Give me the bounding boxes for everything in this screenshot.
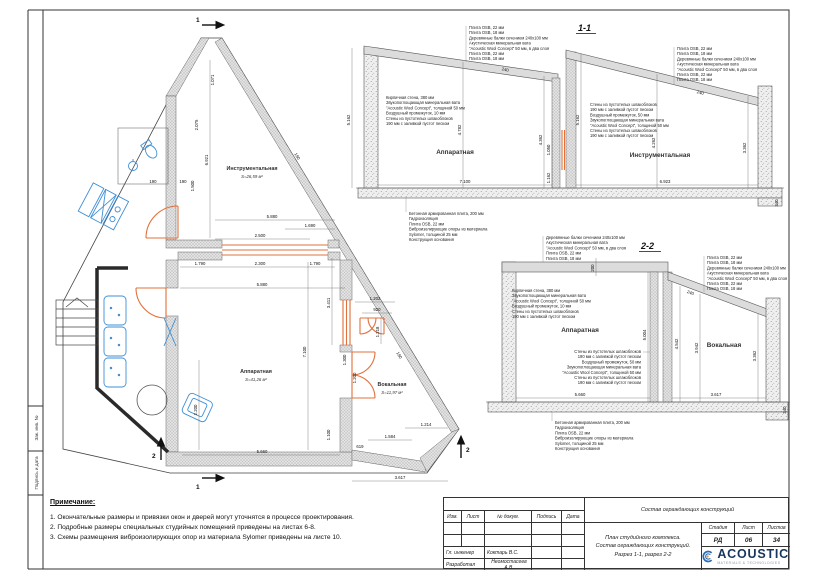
dimension-label: 5.880 <box>267 214 278 219</box>
svg-text:Конструкция основания: Конструкция основания <box>409 237 454 242</box>
roof-slab <box>502 262 668 272</box>
section-room-label: Инструментальная <box>630 152 691 159</box>
stage-header: Стадия <box>701 522 734 533</box>
stairs-icon <box>56 298 98 345</box>
col-header: Дата <box>561 510 584 522</box>
logo-name: ACOUSTIC <box>717 548 789 561</box>
dimension-label: 190 <box>395 351 403 360</box>
round-table-icon <box>137 385 167 415</box>
dimension-label: 3.617 <box>711 392 722 397</box>
signature-role: Разработал <box>444 558 484 570</box>
dimension-label: 2.200 <box>193 404 198 415</box>
outer-wall <box>364 48 378 188</box>
section-title: 1-1 <box>578 23 591 33</box>
dimension-label: 1.202 <box>370 296 381 301</box>
section-marker-label: 1 <box>196 484 200 491</box>
room-name: Инструментальная <box>227 166 278 172</box>
notes-title: Примечание: <box>50 499 430 506</box>
roof-annotation: Плита OSB, 22 мм Плита OSB, 18 мм Деревя… <box>469 25 549 61</box>
dimension-label: 7.100 <box>460 179 471 184</box>
partition-wall <box>663 272 672 402</box>
signature-role: Гл. инженер <box>444 546 484 558</box>
dimension-label: 7.100 <box>302 346 307 357</box>
dimension-label: 5.660 <box>257 449 268 454</box>
roof-slab <box>364 46 558 82</box>
dimension-label: 1.162 <box>546 172 551 183</box>
signature-name: Неомостасеев А.В. <box>484 558 531 570</box>
roof-annotation: Плита OSB, 22 мм Плита OSB, 18 мм Деревя… <box>707 255 787 291</box>
dimension-label: 3.411 <box>326 297 331 308</box>
section-2-2: 2-2 Аппаратная Вокальная 200 5.004 4.542… <box>486 235 790 451</box>
wall-annotation: Кирпичная стена, 380 мм Звукопоглощающая… <box>386 95 465 126</box>
dimension-label: 3.617 <box>395 475 406 480</box>
dimension-label: 200 <box>590 264 595 272</box>
company-logo: ACOUSTIC MATERIALS & TECHNOLOGIES <box>701 545 789 568</box>
dimension-label: 4.782 <box>457 124 462 135</box>
drawing-sheet: Зак. инв. № Подпись и дата <box>0 0 816 579</box>
dimension-label: 5.004 <box>642 329 647 340</box>
dimension-label: 1.300 <box>342 354 347 365</box>
floor-annotation: Бетонная армированная плита, 200 мм Гидр… <box>555 420 634 451</box>
dimension-label: 1.200 <box>352 372 357 383</box>
partition-wall <box>650 272 658 402</box>
section-room-label: Вокальная <box>707 342 742 349</box>
floor-annotation: Бетонная армированная плита, 200 мм Гидр… <box>409 211 488 242</box>
dimension-label: 1.100 <box>326 429 331 440</box>
section-room-label: Аппаратная <box>561 327 599 334</box>
dimension-label: 619 <box>356 444 364 449</box>
section-dim-labels: 200 5.004 4.542 3.942 3.362 5.660 3.617 … <box>575 264 787 414</box>
section-marker-label: 2 <box>152 453 156 460</box>
room-area: S=41,26 м² <box>245 377 267 382</box>
dimension-label: 240 <box>686 289 695 296</box>
dimension-label: 4.542 <box>674 338 679 349</box>
col-header: Лист <box>461 510 484 522</box>
dimension-label: 5.162 <box>575 114 580 125</box>
dimension-label: 340 <box>774 199 779 207</box>
dimension-label: 1.218 <box>375 326 380 337</box>
section-1-1: 1-1 Аппаратная Инструментальная <box>346 23 784 242</box>
dimension-label: 2.500 <box>255 233 266 238</box>
dimension-label: 2.075 <box>194 119 199 130</box>
dimension-label: 1.690 <box>305 223 316 228</box>
dimension-label: 1.050 <box>546 144 551 155</box>
outer-wall <box>502 262 516 402</box>
col-header: № докум. <box>484 510 531 522</box>
note-item: 1. Окончательные размеры и привязки окон… <box>50 513 430 523</box>
dimension-label: 5.880 <box>257 282 268 287</box>
dimension-label: 3.362 <box>752 350 757 361</box>
wc-room <box>118 128 168 184</box>
floor-plan: Инструментальная S=26,59 м² Аппаратная S… <box>56 17 470 491</box>
floor-slab <box>358 188 782 198</box>
floor-slab <box>488 402 788 412</box>
svg-text:Плита OSB, 18 мм: Плита OSB, 18 мм <box>677 77 712 82</box>
dimension-label: 240 <box>696 89 705 96</box>
plan-dim-labels: 6.921 1.071 2.075 1.500 190 190 5.880 1.… <box>149 74 432 480</box>
dimension-label: 5.162 <box>346 114 351 125</box>
dimension-label: 190 <box>179 179 187 184</box>
dimension-label: 6.921 <box>204 154 209 165</box>
sheet-title: План студийного комплекса. Состав огражд… <box>584 522 701 570</box>
dimension-label: 6.923 <box>660 179 671 184</box>
logo-tagline: MATERIALS & TECHNOLOGIES <box>717 562 789 565</box>
dimension-label: 340 <box>782 406 787 414</box>
room-name: Аппаратная <box>240 369 272 375</box>
document-name: Состав ограждающих конструкций <box>584 498 790 522</box>
stamp-side-label: Подпись и дата <box>34 456 39 489</box>
notes-block: Примечание: 1. Окончательные размеры и п… <box>50 499 430 543</box>
dimension-label: 1.584 <box>385 434 396 439</box>
cad-canvas: Зак. инв. № Подпись и дата <box>0 0 816 579</box>
sofa-icon <box>104 296 126 387</box>
wall-annotation: Стены из пустотелых шлакоблоков 190 мм с… <box>562 349 641 385</box>
acoustic-logo-icon <box>701 548 714 565</box>
svg-text:Плита OSB, 18 мм: Плита OSB, 18 мм <box>707 286 742 291</box>
dimension-label: 4.362 <box>538 134 543 145</box>
dimension-label: 1.500 <box>190 180 195 191</box>
svg-text:190 мм с заливкой пустот песко: 190 мм с заливкой пустот песком <box>578 380 641 385</box>
dimension-label: 190 <box>149 179 157 184</box>
svg-text:Плита OSB, 18 мм: Плита OSB, 18 мм <box>469 56 504 61</box>
outer-wall <box>758 86 772 188</box>
section-marker-label: 2 <box>466 447 470 454</box>
outer-wall <box>766 298 780 402</box>
section-marker-label: 1 <box>196 17 200 24</box>
roof-annotation: Плита OSB, 22 мм Плита OSB, 18 мм Деревя… <box>677 46 757 82</box>
note-item: 2. Подробные размеры специальных студийн… <box>50 523 430 533</box>
svg-text:Конструкция основания: Конструкция основания <box>555 446 600 451</box>
dimension-label: 2.300 <box>255 261 266 266</box>
stamp-side-label: Зак. инв. № <box>34 415 39 440</box>
svg-text:Плита OSB, 18 мм: Плита OSB, 18 мм <box>546 256 581 261</box>
room-area: S=11,97 м² <box>381 390 403 395</box>
sheet-frame: Зак. инв. № Подпись и дата <box>28 10 789 569</box>
room-area: S=26,59 м² <box>241 174 263 179</box>
toilet-icon <box>141 140 160 160</box>
dimension-label: 3.362 <box>742 142 747 153</box>
dimension-label: 1.790 <box>310 261 321 266</box>
section-room-label: Аппаратная <box>436 149 474 156</box>
svg-text:190 мм с заливкой пустот песко: 190 мм с заливкой пустот песком <box>590 133 653 138</box>
signature-name: Коктарь В.С. <box>484 546 531 558</box>
section-title: 2-2 <box>640 241 654 251</box>
dimension-label: 1.214 <box>421 422 432 427</box>
sheet-header: Лист <box>734 522 762 533</box>
partition-wall <box>552 78 560 188</box>
note-item: 3. Схемы размещения виброизолирующих опо… <box>50 533 430 543</box>
dimension-label: 920 <box>373 307 381 312</box>
roof-annotation: Деревянные балки сечением 240х100 мм Аку… <box>546 235 626 261</box>
dimension-label: 1.071 <box>210 74 215 85</box>
svg-text:190 мм с заливкой пустот песко: 190 мм с заливкой пустот песком <box>512 314 575 319</box>
svg-text:190 мм с заливкой пустот песко: 190 мм с заливкой пустот песком <box>386 121 449 126</box>
dimension-label: 1.790 <box>195 261 206 266</box>
dimension-label: 3.942 <box>694 342 699 353</box>
dimension-label: 4.262 <box>651 137 656 148</box>
wall-annotation: Кирпичная стена, 380 мм Звукопоглощающая… <box>512 288 591 319</box>
dimension-label: 5.660 <box>575 392 586 397</box>
sheets-header: Листов <box>762 522 790 533</box>
col-header: Подпись <box>531 510 561 522</box>
kitchen-unit-icon <box>78 183 128 230</box>
col-header: Изм. <box>444 510 461 522</box>
room-name: Вокальная <box>377 382 406 388</box>
